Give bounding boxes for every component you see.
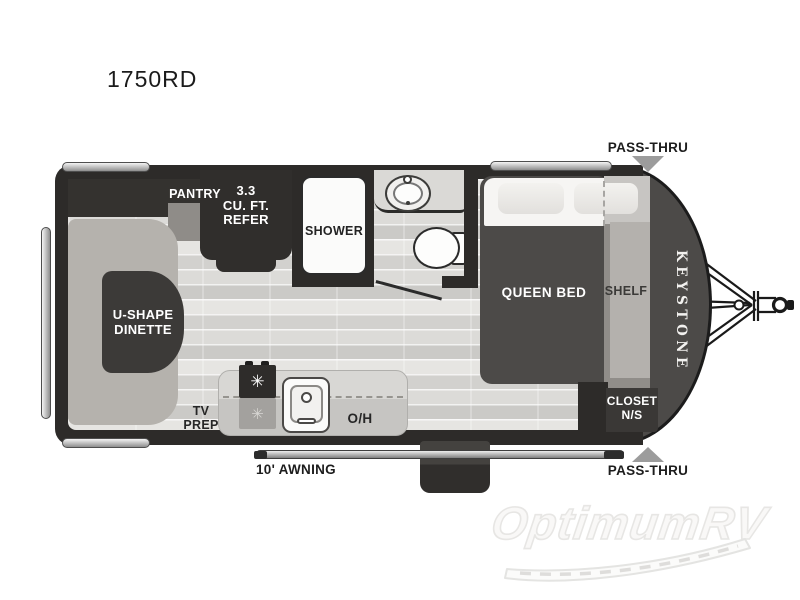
pass-thru-bottom-label: PASS-THRU — [598, 463, 698, 478]
page-title: 1750RD — [107, 66, 197, 93]
stove-icon: ✳ — [239, 365, 276, 398]
floorplan-page: 1750RD OptimumRV KEYSTONE — [0, 0, 800, 600]
dinette-label-line: U-SHAPE — [102, 308, 184, 323]
shower-label: SHOWER — [301, 224, 367, 238]
kitchen-faucet-icon — [301, 392, 312, 403]
stove-lower-icon: ✳ — [239, 398, 276, 429]
pass-thru-top-label: PASS-THRU — [598, 140, 698, 155]
toilet-icon — [413, 227, 460, 269]
pillow — [498, 183, 564, 214]
window-trim — [41, 227, 51, 419]
dinette-label: U-SHAPE DINETTE — [102, 308, 184, 337]
brand-vertical-text: KEYSTONE — [666, 236, 696, 386]
bath-faucet-icon — [403, 175, 412, 184]
queen-bed-label: QUEEN BED — [484, 285, 604, 300]
bath-drain-icon — [406, 201, 410, 205]
burner-icon: ✳ — [239, 365, 276, 398]
bathroom-wall — [464, 168, 478, 288]
refer-label-line: CU. FT. — [204, 199, 288, 214]
closet-label-line: N/S — [606, 409, 658, 423]
overhead-label: O/H — [334, 411, 386, 426]
pillow — [574, 183, 638, 214]
refrigerator-base — [216, 256, 276, 272]
bed-foot-wall — [578, 382, 608, 432]
bed-shelf-divider — [603, 181, 605, 226]
dinette-label-line: DINETTE — [102, 323, 184, 338]
awning-end-cap — [604, 451, 624, 459]
entry-steps — [420, 441, 490, 493]
closet-label: CLOSET N/S — [606, 395, 658, 422]
burner-icon: ✳ — [239, 398, 276, 429]
window-trim — [62, 162, 150, 172]
refer-label-line: REFER — [204, 213, 288, 228]
shelf-label: SHELF — [602, 284, 650, 298]
closet-label-line: CLOSET — [606, 395, 658, 409]
awning-label: 10' AWNING — [248, 462, 344, 477]
pass-thru-arrow-down-icon — [632, 156, 664, 172]
window-trim — [490, 161, 612, 171]
awning-bar — [256, 450, 624, 459]
pass-thru-arrow-up-icon — [632, 447, 664, 462]
refer-label: 3.3 CU. FT. REFER — [204, 184, 288, 228]
watermark-road-icon — [495, 536, 763, 588]
shelf-inner — [610, 222, 650, 378]
refer-label-line: 3.3 — [204, 184, 288, 199]
tv-prep-label: TV PREP — [176, 404, 226, 432]
awning-end-cap — [254, 451, 267, 459]
window-trim — [62, 438, 150, 448]
tv-prep-label-line: PREP — [176, 418, 226, 432]
tv-prep-label-line: TV — [176, 404, 226, 418]
kitchen-drain-icon — [297, 418, 316, 424]
bathroom-wall-stub — [442, 276, 478, 288]
